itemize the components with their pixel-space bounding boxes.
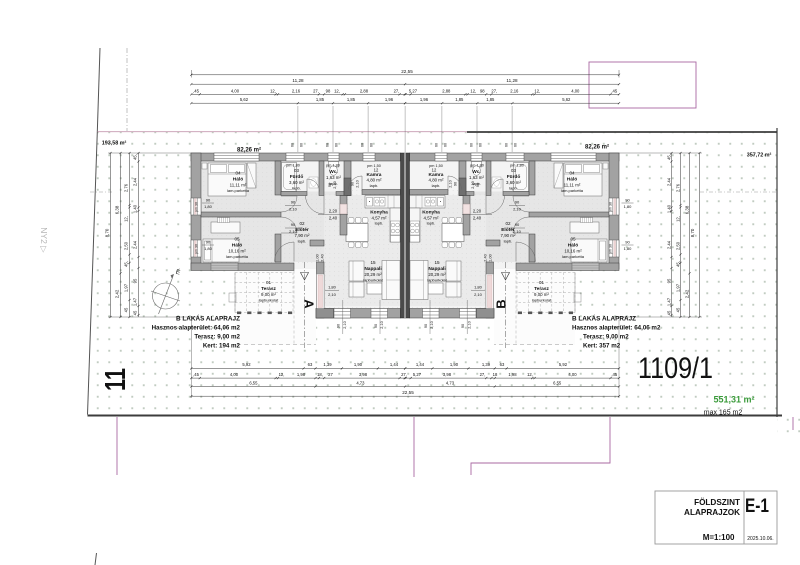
svg-text:11,11 m²: 11,11 m² [564, 183, 581, 188]
svg-text:lam.parketta: lam.parketta [226, 254, 249, 259]
svg-text:pm 30: pm 30 [195, 244, 199, 254]
svg-text:90: 90 [374, 324, 378, 328]
svg-text:lapb.: lapb. [370, 183, 379, 188]
svg-text:lapb.: lapb. [432, 183, 441, 188]
svg-text:90: 90 [206, 198, 211, 203]
svg-text:15: 15 [370, 260, 376, 265]
svg-text:27,: 27, [394, 88, 400, 93]
svg-text:lapb.: lapb. [292, 186, 301, 191]
svg-text:1,80: 1,80 [624, 246, 633, 251]
svg-text:357,72 m²: 357,72 m² [747, 153, 772, 159]
svg-text:04: 04 [235, 171, 241, 176]
svg-text:2,50: 2,50 [676, 241, 681, 250]
svg-text:12,: 12, [334, 88, 340, 93]
svg-text:2,76: 2,76 [676, 183, 681, 192]
svg-text:60: 60 [514, 143, 518, 147]
svg-text:2,40: 2,40 [484, 254, 488, 261]
svg-text:5,27: 5,27 [413, 372, 422, 377]
svg-text:3,60 m²: 3,60 m² [289, 180, 304, 185]
svg-text:60: 60 [361, 143, 365, 147]
svg-text:1,40: 1,40 [133, 204, 138, 213]
svg-text:12: 12 [374, 168, 379, 173]
svg-text:Terasz: 9,00 m2: Terasz: 9,00 m2 [194, 334, 240, 341]
svg-text:90: 90 [461, 324, 465, 328]
svg-text:27,: 27, [491, 88, 497, 93]
svg-text:10,16 m²: 10,16 m² [564, 249, 582, 254]
svg-text:2,42: 2,42 [115, 289, 120, 298]
svg-text:63: 63 [308, 362, 313, 367]
svg-text:,45: ,45 [611, 372, 617, 377]
svg-text:2025.10.06.: 2025.10.06. [747, 536, 773, 542]
svg-text:3,98: 3,98 [443, 372, 452, 377]
svg-text:18: 18 [493, 372, 498, 377]
svg-text:6,55: 6,55 [249, 381, 258, 386]
svg-text:2,10: 2,10 [289, 207, 298, 212]
svg-text:,45: ,45 [611, 88, 617, 93]
svg-text:,45: ,45 [193, 88, 199, 93]
svg-text:2,10: 2,10 [474, 292, 483, 297]
svg-text:1,47: 1,47 [667, 297, 672, 306]
svg-text:60: 60 [335, 143, 339, 147]
svg-text:12,: 12, [676, 216, 681, 222]
svg-text:2,88: 2,88 [360, 88, 369, 93]
svg-text:27,: 27, [313, 88, 319, 93]
svg-text:98: 98 [326, 88, 331, 93]
svg-text:90: 90 [351, 182, 355, 186]
svg-text:1,90: 1,90 [450, 362, 459, 367]
svg-text:2,76: 2,76 [124, 183, 129, 192]
svg-text:1,97: 1,97 [124, 283, 129, 292]
svg-text:FÖLDSZINT: FÖLDSZINT [694, 497, 740, 507]
svg-text:2,10: 2,10 [328, 292, 337, 297]
svg-text:15: 15 [434, 260, 440, 265]
svg-text:2,20: 2,20 [473, 209, 482, 214]
svg-text:lapb.: lapb. [298, 239, 307, 244]
svg-text:lam.parketta: lam.parketta [562, 254, 585, 259]
svg-text:NY2 ▷: NY2 ▷ [39, 227, 49, 253]
svg-text:2,88: 2,88 [442, 88, 451, 93]
svg-text:2,16: 2,16 [510, 88, 519, 93]
svg-text:1109/1: 1109/1 [638, 352, 713, 385]
svg-text:03: 03 [294, 168, 299, 173]
svg-text:12,: 12, [534, 88, 540, 93]
svg-text:2,10: 2,10 [430, 321, 434, 328]
svg-text:1,80: 1,80 [204, 246, 213, 251]
svg-text:1,96: 1,96 [420, 97, 429, 102]
svg-text:lapburkolat: lapburkolat [363, 278, 383, 283]
svg-text:4,00: 4,00 [571, 88, 580, 93]
svg-text:8,70: 8,70 [105, 228, 110, 237]
svg-text:2,44: 2,44 [133, 240, 138, 249]
svg-text:2,50: 2,50 [124, 241, 129, 250]
svg-text:1,85: 1,85 [455, 97, 464, 102]
svg-text:5,62: 5,62 [562, 97, 571, 102]
svg-text:1,85: 1,85 [316, 97, 325, 102]
svg-text:A: A [302, 299, 317, 309]
svg-text:60: 60 [370, 143, 374, 147]
svg-text:02: 02 [299, 221, 305, 226]
svg-text:lapburkolat: lapburkolat [427, 278, 447, 283]
svg-text:1,63 m²: 1,63 m² [469, 175, 484, 180]
svg-text:60: 60 [470, 143, 474, 147]
svg-text:4,80 m²: 4,80 m² [367, 178, 382, 183]
svg-text:1,00: 1,00 [489, 254, 493, 261]
svg-text:B LAKÁS ALAPRAJZ: B LAKÁS ALAPRAJZ [176, 314, 240, 323]
svg-text:2,10: 2,10 [333, 181, 337, 188]
svg-text:lam.parketta: lam.parketta [561, 188, 584, 193]
svg-text:2,10: 2,10 [513, 207, 522, 212]
svg-text:12,: 12, [279, 372, 285, 377]
svg-text:pm 1,80: pm 1,80 [470, 164, 484, 168]
svg-text:01: 01 [539, 280, 545, 285]
svg-text:2,20: 2,20 [329, 209, 338, 214]
svg-text:45: 45 [133, 310, 138, 315]
svg-text:5,92: 5,92 [559, 362, 568, 367]
svg-text:18,: 18, [317, 372, 323, 377]
svg-text:6,38: 6,38 [685, 205, 690, 214]
svg-text:20,29 m²: 20,29 m² [364, 272, 382, 277]
svg-text:95: 95 [133, 278, 138, 283]
svg-text:90: 90 [625, 240, 630, 245]
svg-text:Kert: 357 m2: Kert: 357 m2 [583, 343, 621, 350]
svg-text:01: 01 [266, 280, 272, 285]
svg-text:max 165 m2: max 165 m2 [704, 410, 743, 417]
svg-text:95: 95 [667, 278, 672, 283]
svg-text:1,97: 1,97 [676, 283, 681, 292]
svg-text:45,: 45, [676, 261, 681, 267]
svg-text:lapb.: lapb. [427, 221, 436, 226]
svg-text:5,92: 5,92 [242, 362, 251, 367]
svg-text:Terasz: 9,00 m2: Terasz: 9,00 m2 [583, 334, 629, 341]
svg-text:90: 90 [337, 324, 341, 328]
svg-text:10,16 m²: 10,16 m² [228, 249, 246, 254]
svg-text:8,70: 8,70 [690, 228, 695, 237]
svg-text:9,00 m²: 9,00 m² [534, 292, 549, 297]
svg-text:82,26 m²: 82,26 m² [585, 144, 609, 151]
svg-text:11,11 m²: 11,11 m² [230, 183, 247, 188]
svg-text:6,38: 6,38 [115, 205, 120, 214]
svg-text:60: 60 [300, 143, 304, 147]
svg-text:lapburkolat: lapburkolat [532, 298, 552, 303]
svg-text:pm 30: pm 30 [195, 202, 199, 212]
svg-text:1,39: 1,39 [323, 362, 332, 367]
svg-text:05: 05 [234, 237, 240, 242]
svg-text:05: 05 [570, 237, 576, 242]
svg-text:M=1:100: M=1:100 [703, 533, 735, 542]
svg-text:90: 90 [206, 240, 211, 245]
svg-text:1,80: 1,80 [328, 285, 337, 290]
svg-text:60: 60 [291, 143, 295, 147]
svg-text:1,47: 1,47 [133, 297, 138, 306]
svg-text:04: 04 [569, 171, 575, 176]
svg-text:,45: ,45 [193, 372, 199, 377]
svg-text:2,10: 2,10 [343, 321, 347, 328]
svg-text:63: 63 [500, 362, 505, 367]
svg-text:2,42: 2,42 [685, 289, 690, 298]
svg-text:2,16: 2,16 [292, 88, 301, 93]
svg-text:1,63 m²: 1,63 m² [326, 175, 341, 180]
svg-text:5,27: 5,27 [409, 88, 418, 93]
svg-text:90: 90 [515, 222, 520, 227]
svg-text:90: 90 [476, 183, 480, 187]
svg-text:45: 45 [667, 310, 672, 315]
svg-text:3,98: 3,98 [359, 372, 368, 377]
svg-text:pm 30: pm 30 [609, 202, 613, 212]
svg-text:3,60 m²: 3,60 m² [506, 180, 521, 185]
svg-text:90: 90 [291, 222, 296, 227]
svg-text:2,10: 2,10 [380, 321, 384, 328]
svg-text:2,44: 2,44 [133, 177, 138, 186]
svg-text:12,: 12, [270, 88, 276, 93]
svg-text:12,: 12, [527, 372, 533, 377]
svg-text:1,80: 1,80 [474, 285, 483, 290]
svg-text:90: 90 [328, 183, 332, 187]
svg-text:1,40: 1,40 [667, 204, 672, 213]
svg-text:45,: 45, [667, 154, 672, 160]
svg-text:2,10: 2,10 [467, 321, 471, 328]
svg-text:2,10: 2,10 [289, 229, 298, 234]
svg-text:1,44: 1,44 [390, 362, 399, 367]
svg-text:60: 60 [444, 143, 448, 147]
svg-text:60: 60 [505, 143, 509, 147]
svg-text:27,: 27, [480, 372, 486, 377]
svg-text:Hasznos alapterület: 64,06 m2: Hasznos alapterület: 64,06 m2 [572, 325, 661, 332]
svg-text:lapb.: lapb. [375, 221, 384, 226]
svg-text:90: 90 [625, 198, 630, 203]
svg-text:9,00 m²: 9,00 m² [261, 292, 276, 297]
svg-text:1,80: 1,80 [204, 204, 213, 209]
svg-text:193,58 m²: 193,58 m² [102, 141, 127, 147]
svg-text:lapburkolat: lapburkolat [259, 298, 279, 303]
svg-text:551,31 m²: 551,31 m² [713, 395, 754, 405]
svg-text:1,96: 1,96 [385, 97, 394, 102]
svg-text:Kert: 194 m2: Kert: 194 m2 [203, 343, 241, 350]
svg-text:98: 98 [480, 88, 485, 93]
svg-text:45: 45 [676, 307, 681, 312]
svg-text:11,28: 11,28 [292, 78, 304, 83]
svg-text:Hasznos alapterület: 64,06 m2: Hasznos alapterület: 64,06 m2 [152, 325, 241, 332]
svg-text:2,10: 2,10 [471, 181, 475, 188]
svg-text:2,10: 2,10 [356, 180, 360, 187]
svg-text:2,44: 2,44 [667, 240, 672, 249]
svg-text:1,00: 1,00 [316, 254, 320, 261]
svg-text:B LAKÁS ALAPRAJZ: B LAKÁS ALAPRAJZ [572, 314, 636, 323]
svg-text:60: 60 [434, 143, 438, 147]
svg-text:02: 02 [505, 221, 511, 226]
svg-text:1,98: 1,98 [297, 372, 306, 377]
svg-text:11,28: 11,28 [506, 78, 518, 83]
svg-text:03: 03 [511, 168, 516, 173]
svg-text:1,80: 1,80 [624, 204, 633, 209]
svg-text:1,98: 1,98 [508, 372, 517, 377]
svg-text:4,73: 4,73 [446, 381, 455, 386]
svg-text:2,40: 2,40 [329, 216, 338, 221]
svg-text:2,10: 2,10 [513, 229, 522, 234]
svg-text:90: 90 [454, 182, 458, 186]
svg-text:4,00: 4,00 [231, 88, 240, 93]
svg-text:1,85: 1,85 [486, 97, 495, 102]
svg-text:B: B [494, 299, 509, 308]
svg-text:2,40: 2,40 [321, 254, 325, 261]
svg-text:2,10: 2,10 [449, 180, 453, 187]
svg-text:90: 90 [291, 200, 296, 205]
svg-text:2,44: 2,44 [667, 177, 672, 186]
svg-text:4,00: 4,00 [568, 372, 577, 377]
svg-text:45,: 45, [124, 261, 129, 267]
svg-text:ALAPRAJZOK: ALAPRAJZOK [684, 508, 740, 517]
svg-text:1,44: 1,44 [416, 362, 425, 367]
svg-text:5,62: 5,62 [240, 97, 249, 102]
svg-text:11: 11 [100, 368, 132, 391]
svg-text:45: 45 [124, 307, 129, 312]
svg-text:82,26 m²: 82,26 m² [237, 147, 261, 154]
svg-text:60: 60 [479, 143, 483, 147]
svg-text:E-1: E-1 [745, 496, 769, 517]
svg-text:4,00: 4,00 [230, 372, 239, 377]
svg-text:1,85: 1,85 [347, 97, 356, 102]
svg-text:pm 1,80: pm 1,80 [510, 164, 524, 168]
svg-text:12: 12 [432, 168, 437, 173]
svg-text:1,39: 1,39 [482, 362, 491, 367]
svg-text:4,73: 4,73 [356, 381, 365, 386]
svg-text:22,55: 22,55 [402, 390, 414, 395]
svg-text:lam.parketta: lam.parketta [227, 188, 250, 193]
svg-text:lapb.: lapb. [509, 186, 518, 191]
svg-text:12,: 12, [124, 216, 129, 222]
svg-text:pm 1,80: pm 1,80 [326, 164, 340, 168]
svg-text:90: 90 [424, 324, 428, 328]
svg-text:20,29 m²: 20,29 m² [428, 272, 446, 277]
svg-text:27,: 27, [401, 372, 407, 377]
svg-text:27: 27 [328, 372, 333, 377]
svg-text:60: 60 [326, 143, 330, 147]
svg-text:12,: 12, [470, 88, 476, 93]
svg-text:4,80 m²: 4,80 m² [429, 178, 444, 183]
svg-text:pm 30: pm 30 [609, 244, 613, 254]
svg-text:6,55: 6,55 [553, 381, 562, 386]
svg-text:22,55: 22,55 [401, 69, 413, 74]
svg-text:45,: 45, [133, 154, 138, 160]
svg-text:lapb.: lapb. [504, 239, 513, 244]
svg-text:90: 90 [515, 200, 520, 205]
svg-text:pm 1,80: pm 1,80 [286, 164, 300, 168]
svg-text:2,40: 2,40 [473, 216, 482, 221]
svg-text:1,90: 1,90 [354, 362, 363, 367]
